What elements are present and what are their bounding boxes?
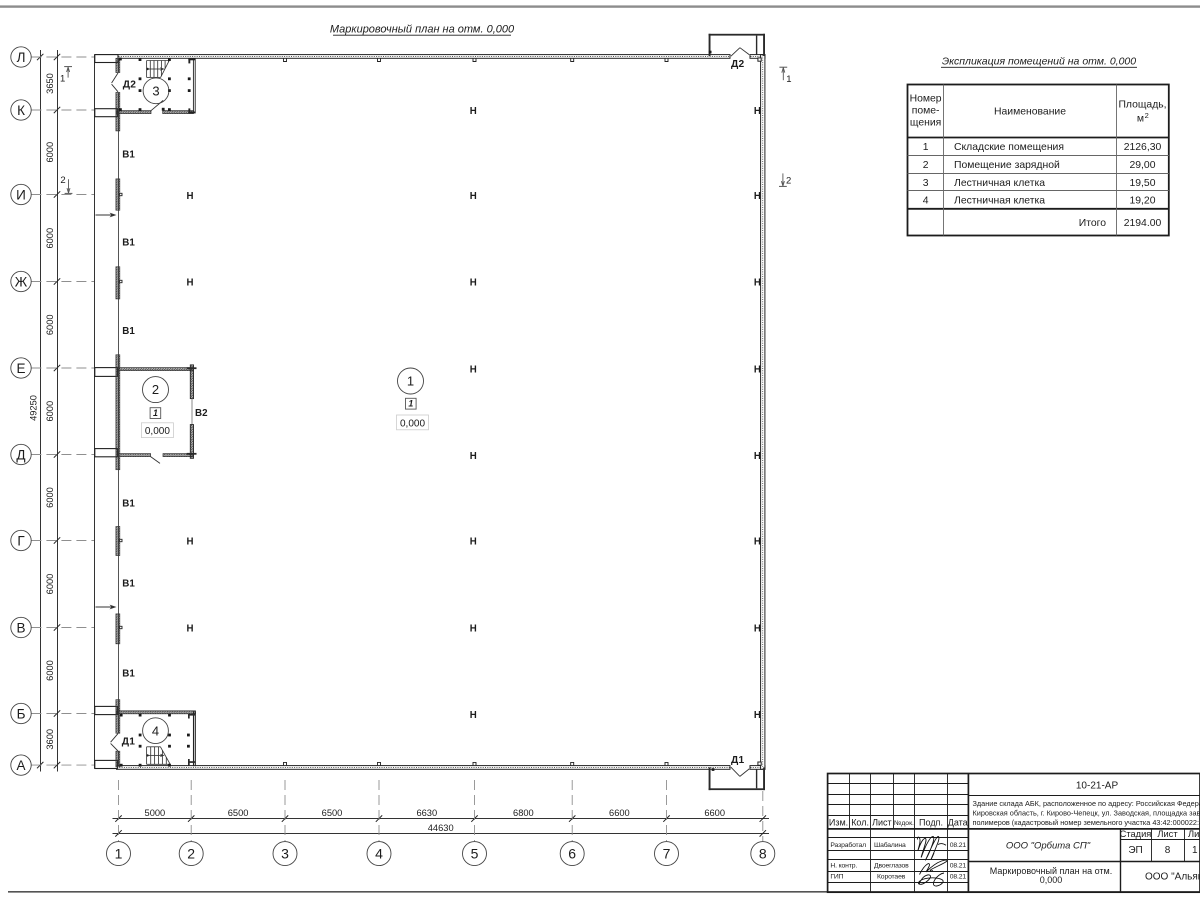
svg-text:Н. контр.: Н. контр. [830, 862, 857, 869]
svg-text:6000: 6000 [45, 228, 55, 249]
svg-text:0,000: 0,000 [1040, 875, 1063, 885]
svg-text:44630: 44630 [428, 823, 454, 833]
svg-text:4: 4 [152, 723, 159, 738]
svg-text:Н: Н [754, 191, 761, 202]
svg-text:ООО "Альянспроект": ООО "Альянспроект" [1145, 871, 1200, 882]
svg-text:08.21: 08.21 [950, 862, 967, 869]
svg-text:К: К [17, 103, 25, 118]
svg-text:8: 8 [1165, 845, 1171, 856]
svg-text:А: А [16, 758, 25, 773]
svg-text:3: 3 [152, 83, 159, 98]
svg-text:2126,30: 2126,30 [1124, 142, 1162, 153]
svg-text:Н: Н [470, 536, 477, 547]
svg-text:6: 6 [568, 846, 576, 862]
svg-text:1: 1 [407, 374, 414, 389]
svg-text:м: м [1137, 114, 1144, 125]
svg-text:Маркировочный план на отм. 0,0: Маркировочный план на отм. 0,000 [330, 24, 515, 36]
svg-text:Двоеглазов: Двоеглазов [874, 862, 909, 869]
svg-text:Помещение зарядной: Помещение зарядной [954, 160, 1060, 171]
svg-text:5000: 5000 [145, 808, 166, 818]
svg-text:6500: 6500 [228, 808, 249, 818]
svg-text:щения: щения [910, 118, 941, 129]
svg-text:Подп.: Подп. [919, 818, 943, 828]
svg-text:1: 1 [786, 74, 791, 85]
svg-text:Н: Н [187, 536, 194, 547]
svg-text:6800: 6800 [513, 808, 534, 818]
svg-text:1: 1 [115, 846, 123, 862]
svg-text:В1: В1 [122, 238, 135, 249]
svg-text:Л: Л [17, 50, 26, 65]
svg-text:В1: В1 [122, 669, 135, 680]
svg-text:10-21-АР: 10-21-АР [1076, 780, 1119, 791]
svg-text:Н: Н [470, 106, 477, 117]
svg-text:6500: 6500 [322, 808, 343, 818]
svg-text:2: 2 [786, 176, 791, 187]
svg-text:1: 1 [60, 74, 65, 85]
svg-text:Стадия: Стадия [1120, 829, 1152, 839]
svg-text:№док.: №док. [894, 820, 914, 827]
svg-text:6000: 6000 [45, 401, 55, 422]
svg-text:Складские помещения: Складские помещения [954, 142, 1064, 153]
svg-text:Н: Н [470, 710, 477, 721]
svg-text:Дата: Дата [948, 818, 968, 828]
svg-text:0,000: 0,000 [145, 426, 170, 437]
svg-text:Наименование: Наименование [994, 107, 1066, 118]
svg-text:В2: В2 [195, 408, 208, 419]
svg-text:Кировская область, г. Кирово-Ч: Кировская область, г. Кирово-Чепецк, ул.… [973, 809, 1200, 818]
svg-text:Н: Н [754, 277, 761, 288]
svg-text:2: 2 [923, 160, 929, 171]
svg-text:Лестничная клетка: Лестничная клетка [954, 195, 1045, 206]
svg-text:поме-: поме- [912, 106, 940, 117]
svg-text:3650: 3650 [45, 73, 55, 94]
svg-text:Е: Е [16, 361, 25, 376]
svg-text:Н: Н [187, 277, 194, 288]
svg-text:3600: 3600 [45, 729, 55, 750]
svg-text:Н: Н [754, 623, 761, 634]
svg-text:49250: 49250 [28, 395, 38, 421]
svg-text:Д1: Д1 [731, 755, 744, 766]
svg-text:В1: В1 [122, 326, 135, 337]
svg-text:Номер: Номер [910, 94, 942, 105]
svg-text:8: 8 [759, 846, 767, 862]
svg-text:ГИП: ГИП [830, 874, 843, 881]
svg-text:Разработал: Разработал [830, 841, 866, 849]
svg-text:Лестничная клетка: Лестничная клетка [954, 178, 1045, 189]
svg-text:5: 5 [471, 846, 479, 862]
svg-text:3: 3 [923, 178, 929, 189]
svg-text:Итого: Итого [1079, 218, 1106, 229]
svg-text:1: 1 [408, 399, 413, 409]
svg-text:Н: Н [470, 277, 477, 288]
svg-text:Лист: Лист [1188, 829, 1200, 839]
svg-text:19,50: 19,50 [1129, 178, 1155, 189]
svg-text:7: 7 [663, 846, 671, 862]
svg-text:08.21: 08.21 [950, 874, 967, 881]
svg-text:В1: В1 [122, 150, 135, 161]
svg-text:19,20: 19,20 [1129, 195, 1155, 206]
svg-text:Н: Н [470, 364, 477, 375]
svg-text:ООО "Орбита СП": ООО "Орбита СП" [1006, 840, 1091, 851]
svg-text:Н: Н [754, 710, 761, 721]
svg-text:Н: Н [754, 451, 761, 462]
svg-text:1: 1 [923, 142, 929, 153]
svg-text:полимеров (кадастровый номер з: полимеров (кадастровый номер земельного … [973, 818, 1200, 827]
svg-text:Лист: Лист [1157, 829, 1178, 839]
svg-text:3: 3 [281, 846, 289, 862]
svg-text:Д: Д [16, 447, 25, 462]
svg-text:6000: 6000 [45, 314, 55, 335]
svg-text:Н: Н [470, 191, 477, 202]
svg-text:Д1: Д1 [122, 737, 135, 748]
svg-text:Б: Б [17, 706, 26, 721]
svg-text:Н: Н [754, 536, 761, 547]
svg-text:2194.00: 2194.00 [1124, 218, 1162, 229]
svg-text:Лист: Лист [872, 818, 892, 828]
svg-text:Здание склада АБК, расположенн: Здание склада АБК, расположенное по адре… [973, 799, 1200, 808]
svg-text:0,000: 0,000 [400, 418, 425, 429]
svg-text:6000: 6000 [45, 142, 55, 163]
svg-text:ЭП: ЭП [1128, 845, 1142, 856]
svg-text:6630: 6630 [416, 808, 437, 818]
svg-text:Экспликация помещений на отм.: Экспликация помещений на отм. 0,000 [942, 56, 1136, 68]
svg-text:Коротаев: Коротаев [877, 874, 906, 881]
svg-text:Ж: Ж [15, 274, 28, 289]
svg-text:6600: 6600 [609, 808, 630, 818]
svg-text:Н: Н [187, 623, 194, 634]
svg-text:Д2: Д2 [731, 59, 744, 70]
svg-text:08.21: 08.21 [950, 842, 967, 849]
svg-text:Н: Н [470, 623, 477, 634]
svg-text:В1: В1 [122, 579, 135, 590]
svg-text:1: 1 [1192, 845, 1198, 856]
svg-text:4: 4 [375, 846, 383, 862]
svg-text:Шабалина: Шабалина [874, 841, 906, 849]
svg-text:Г: Г [17, 533, 25, 548]
svg-text:Д2: Д2 [123, 80, 136, 91]
svg-text:Площадь,: Площадь, [1118, 100, 1166, 111]
svg-text:Н: Н [470, 451, 477, 462]
svg-text:2: 2 [187, 846, 195, 862]
svg-text:6000: 6000 [45, 660, 55, 681]
svg-text:6000: 6000 [45, 574, 55, 595]
svg-text:Н: Н [187, 191, 194, 202]
svg-text:2: 2 [152, 382, 159, 397]
svg-text:1: 1 [153, 408, 158, 418]
svg-text:4: 4 [923, 195, 929, 206]
svg-text:2: 2 [1145, 111, 1149, 120]
svg-text:В: В [16, 620, 25, 635]
svg-text:Кол.: Кол. [851, 818, 869, 828]
svg-text:6600: 6600 [704, 808, 725, 818]
svg-text:6000: 6000 [45, 487, 55, 508]
svg-text:29,00: 29,00 [1129, 160, 1155, 171]
svg-text:Н: Н [754, 106, 761, 117]
svg-text:В1: В1 [122, 499, 135, 510]
svg-text:2: 2 [60, 175, 65, 186]
svg-text:Изм.: Изм. [829, 818, 848, 828]
svg-text:И: И [16, 187, 26, 202]
svg-text:Н: Н [754, 364, 761, 375]
